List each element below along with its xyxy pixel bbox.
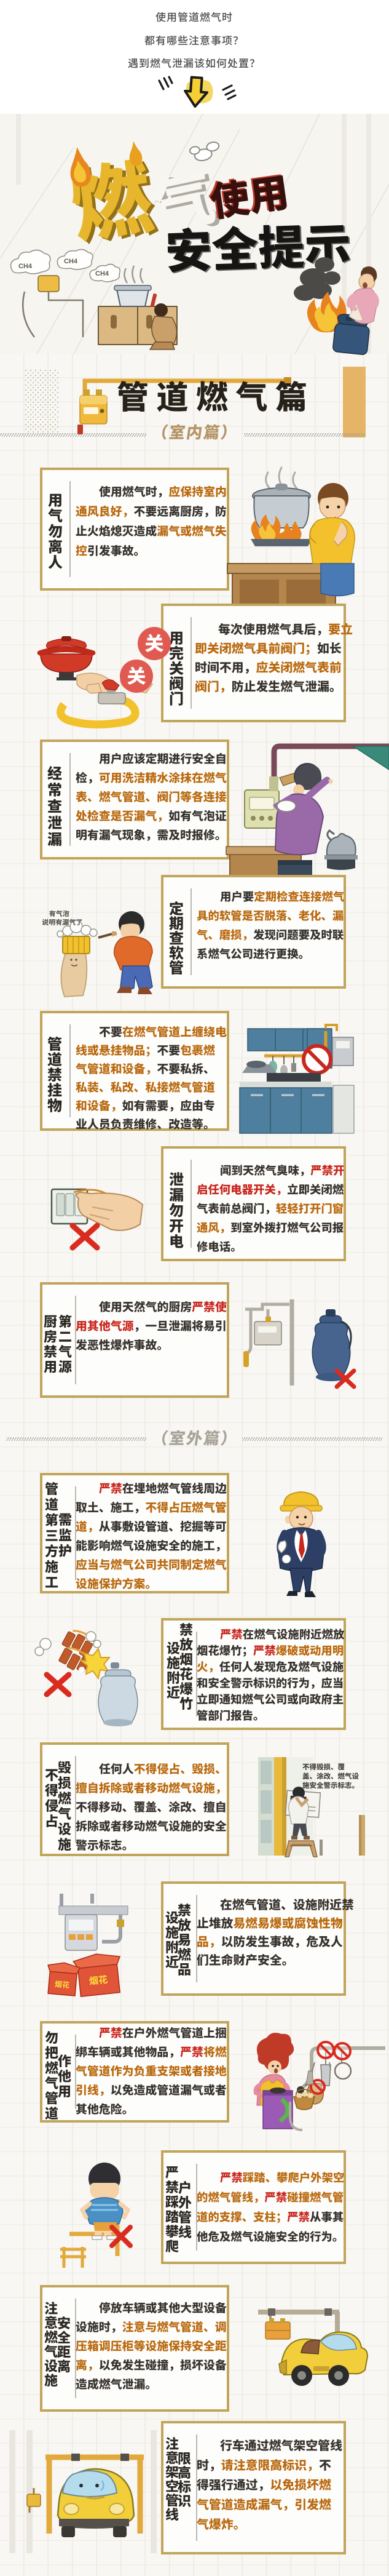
svg-text:CH4: CH4 — [95, 270, 109, 277]
svg-text:CH4: CH4 — [18, 263, 33, 270]
svg-text:CH4: CH4 — [64, 258, 78, 265]
